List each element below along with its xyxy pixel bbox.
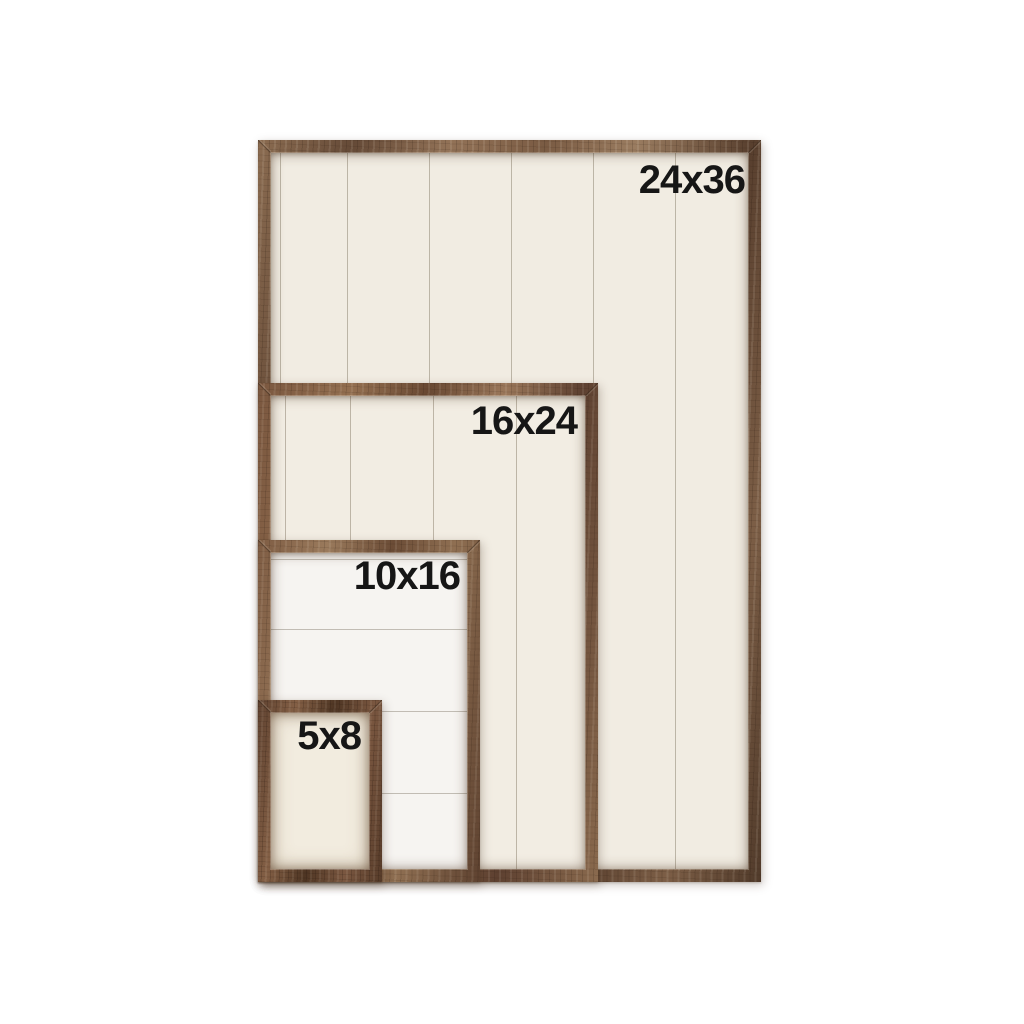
frame-24x36-size-label: 24x36: [639, 160, 745, 200]
frame-5x8-size-label: 5x8: [297, 716, 361, 756]
frame-10x16-size-label: 10x16: [354, 556, 460, 596]
frame-16x24-size-label: 16x24: [471, 401, 577, 441]
frame-5x8: 5x8: [258, 700, 382, 882]
size-comparison-canvas: 24x36 16x24 10x16 5x8: [0, 0, 1024, 1024]
